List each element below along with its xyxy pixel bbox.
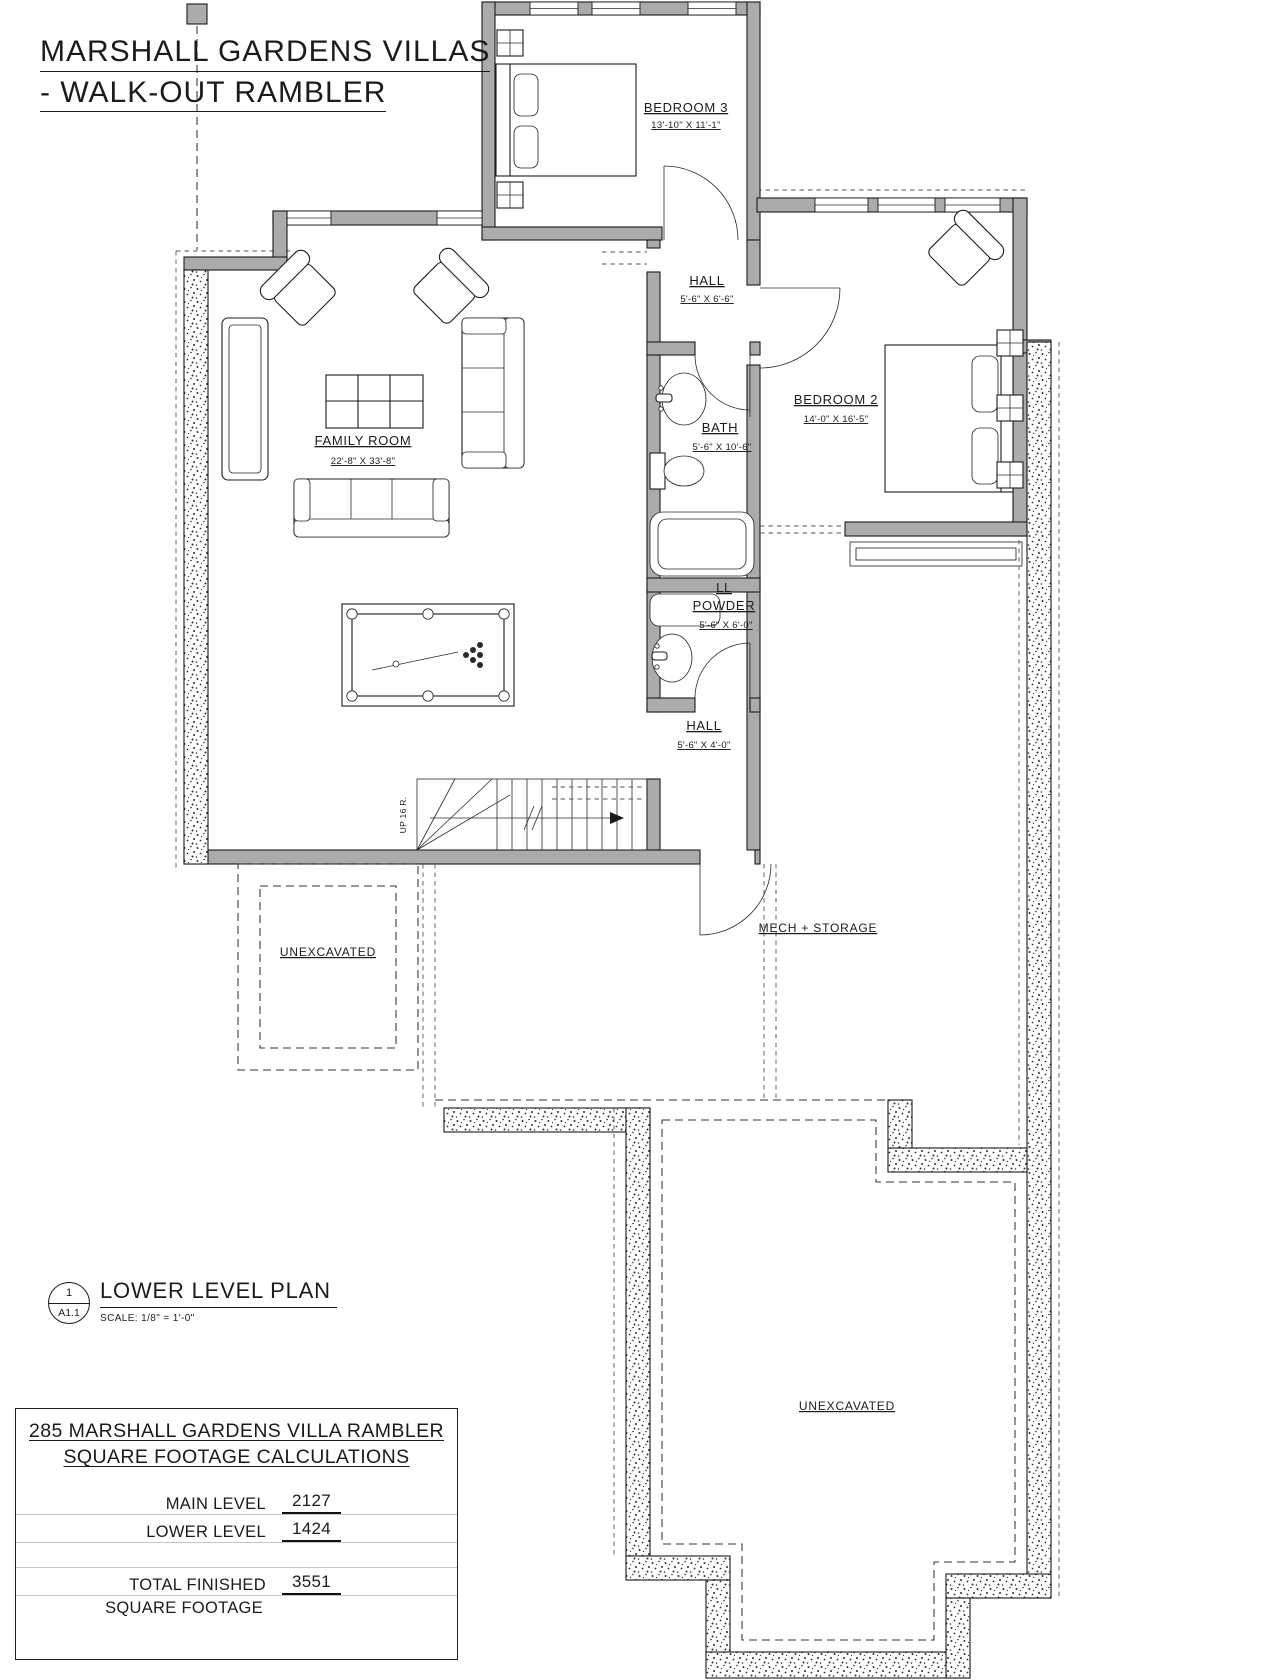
hall-upper-label: HALL: [689, 273, 724, 288]
unexcavated-left-label: UNEXCAVATED: [280, 945, 376, 959]
sheet-title-line1: MARSHALL GARDENS VILLAS: [40, 36, 490, 72]
table-row-total-line2: SQUARE FOOTAGE: [16, 1599, 263, 1618]
family-sofa-right: [462, 318, 524, 468]
pool-table: [342, 604, 514, 706]
bath-label: BATH: [702, 420, 739, 435]
row-value: 3551: [282, 1572, 341, 1595]
hall-lower-dims: 5'-6" X 4'-0": [677, 740, 730, 751]
stairs-up-label: UP 16 R.: [398, 797, 408, 834]
powder-door: [695, 643, 750, 698]
bath-toilet: [650, 453, 704, 489]
bath-dims: 5'-6" X 10'-6": [693, 442, 752, 453]
bedroom2-window-boxes: [997, 330, 1023, 488]
family-room-label: FAMILY ROOM: [315, 433, 412, 448]
family-grid-table: [326, 375, 423, 428]
bath: [650, 355, 754, 576]
row-label: MAIN LEVEL: [166, 1495, 266, 1514]
bedroom3-dims: 13'-10" X 11'-1": [651, 120, 720, 131]
bedroom2-bed: [885, 345, 1013, 492]
detail-number: 1: [49, 1283, 89, 1303]
sheet-number: A1.1: [49, 1303, 89, 1324]
sheet-title-line2: - WALK-OUT RAMBLER: [40, 77, 386, 113]
table-title-line2: SQUARE FOOTAGE CALCULATIONS: [16, 1444, 457, 1470]
unexcavated-right-label: UNEXCAVATED: [799, 1399, 895, 1413]
plan-name: LOWER LEVEL PLAN: [100, 1278, 337, 1308]
row-value: 2127: [282, 1491, 341, 1514]
bath-tub: [650, 512, 754, 576]
sheet-title: MARSHALL GARDENS VILLAS - WALK-OUT RAMBL…: [40, 36, 490, 117]
family-chair-right: [407, 245, 492, 330]
square-footage-table: 285 MARSHALL GARDENS VILLA RAMBLER SQUAR…: [15, 1408, 458, 1660]
stairs: [417, 779, 647, 850]
bedroom2: [757, 198, 1051, 566]
powder-label-line1: LL: [716, 580, 732, 595]
powder-label-line2: POWDER: [693, 598, 756, 613]
table-row-total: TOTAL FINISHED 3551: [16, 1568, 457, 1596]
family-console: [222, 318, 268, 480]
family-room-dims: 22'-8" X 33'-8": [331, 456, 396, 467]
construction-lines: [176, 4, 1059, 1598]
bedroom3-door: [664, 166, 738, 240]
bedroom3-bed: [496, 64, 636, 176]
bedroom2-closet-shelf: [850, 542, 1022, 566]
bedroom2-label: BEDROOM 2: [794, 392, 878, 407]
plan-title-block: 1 A1.1 LOWER LEVEL PLAN SCALE: 1/8" = 1'…: [48, 1278, 337, 1324]
room-labels: BEDROOM 3 13'-10" X 11'-1" HALL 5'-6" X …: [280, 100, 895, 1413]
row-value: 1424: [282, 1519, 341, 1542]
table-row-spacer: [16, 1543, 457, 1568]
hall-upper-dims: 5'-6" X 6'-6": [680, 294, 733, 305]
hall-lower-label: HALL: [686, 718, 721, 733]
mech-storage-label: MECH + STORAGE: [759, 921, 878, 935]
bedroom2-dims: 14'-0" X 16'-5": [804, 414, 869, 425]
row-label: LOWER LEVEL: [146, 1523, 266, 1542]
table-row-main-level: MAIN LEVEL 2127: [16, 1487, 457, 1515]
bedroom2-chair: [922, 207, 1007, 292]
table-title-line1: 285 MARSHALL GARDENS VILLA RAMBLER: [16, 1418, 457, 1444]
detail-bubble: 1 A1.1: [48, 1282, 90, 1324]
plan-scale: SCALE: 1/8" = 1'-0": [100, 1313, 337, 1324]
powder-sink: [652, 634, 692, 682]
powder-dims: 5'-6" X 6'-0": [699, 620, 752, 631]
bedroom2-door: [760, 288, 840, 368]
bath-sink: [656, 373, 706, 425]
family-sofa-bottom: [294, 479, 449, 537]
bedroom3-label: BEDROOM 3: [644, 100, 728, 115]
row-label: TOTAL FINISHED: [129, 1576, 266, 1595]
table-row-lower-level: LOWER LEVEL 1424: [16, 1515, 457, 1543]
